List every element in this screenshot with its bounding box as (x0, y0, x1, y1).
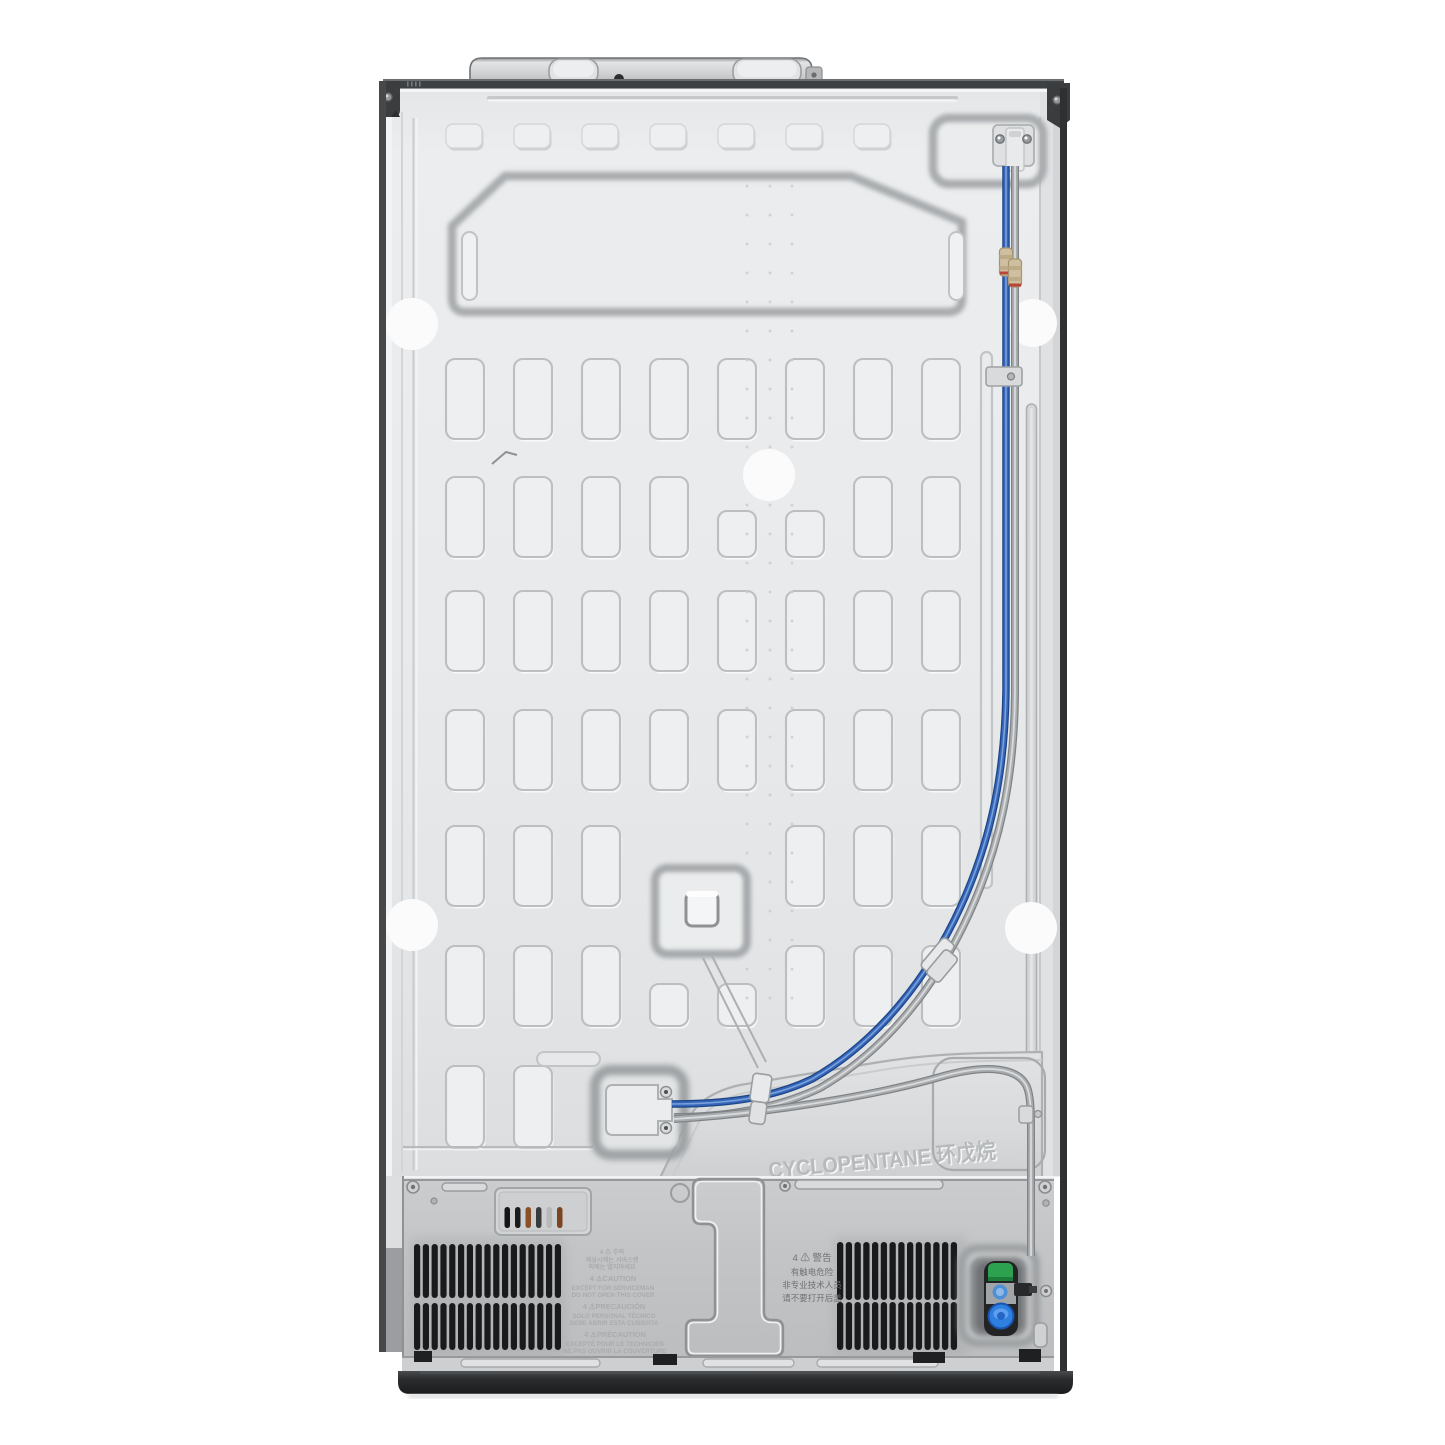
svg-text:4 ⚠CAUTION: 4 ⚠CAUTION (590, 1274, 636, 1283)
svg-text:외에는 열지마세요: 외에는 열지마세요 (588, 1263, 636, 1271)
svg-text:EXCEPTÉ POUR LE TECHNICIEN: EXCEPTÉ POUR LE TECHNICIEN (566, 1340, 664, 1348)
svg-text:4 ⚠PRECAUCIÓN: 4 ⚠PRECAUCIÓN (583, 1302, 645, 1311)
svg-text:非专业技术人员: 非专业技术人员 (782, 1280, 842, 1290)
svg-text:4 ⚠ 警告: 4 ⚠ 警告 (792, 1252, 831, 1264)
svg-text:DO NOT OPEN THIS COVER: DO NOT OPEN THIS COVER (572, 1292, 655, 1299)
svg-text:제상시에는 서비스맨: 제상시에는 서비스맨 (586, 1256, 639, 1264)
svg-text:SOLO PERSONAL TÉCNICO: SOLO PERSONAL TÉCNICO (572, 1312, 655, 1320)
svg-text:NE PAS OUVRIR LA COUVERTURE: NE PAS OUVRIR LA COUVERTURE (563, 1348, 666, 1355)
svg-text:DEBE ABRIR ESTA CUBIERTA: DEBE ABRIR ESTA CUBIERTA (569, 1320, 659, 1327)
svg-text:有触电危险: 有触电危险 (791, 1267, 834, 1277)
svg-text:4 ⚠ 주의: 4 ⚠ 주의 (600, 1248, 625, 1256)
svg-text:4 ⚠PRÉCAUTION: 4 ⚠PRÉCAUTION (584, 1330, 646, 1339)
svg-text:请不要打开后盖: 请不要打开后盖 (782, 1293, 842, 1303)
svg-text:EXCEPT FOR SERVICEMAN: EXCEPT FOR SERVICEMAN (572, 1285, 655, 1292)
